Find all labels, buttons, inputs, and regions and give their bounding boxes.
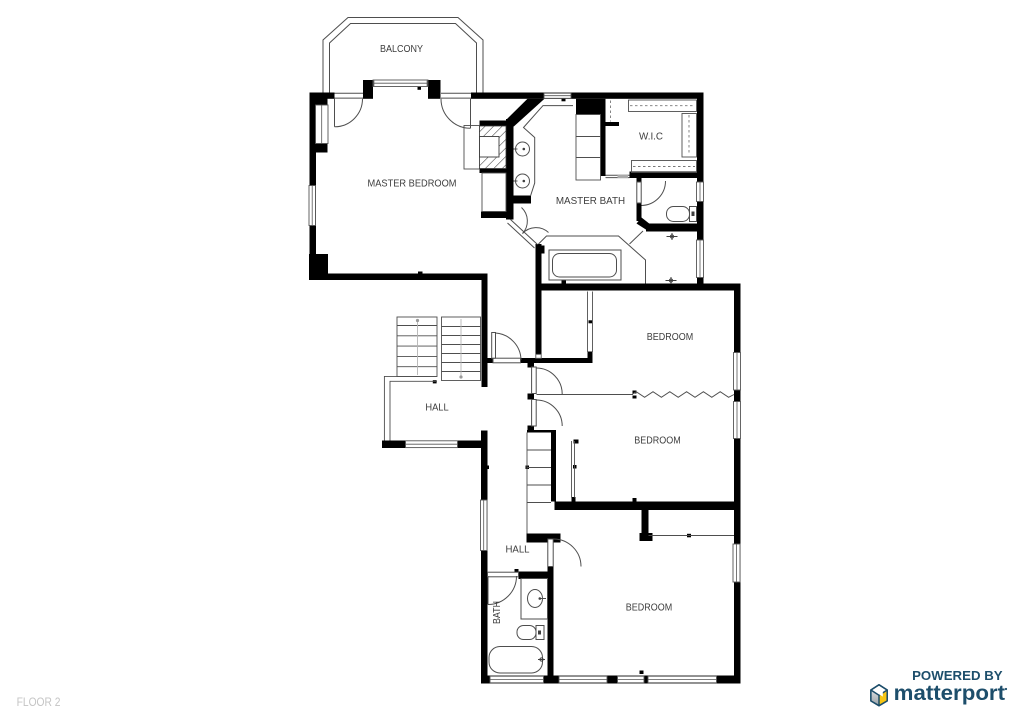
svg-text:BATH: BATH [492, 601, 503, 624]
svg-text:MASTER BEDROOM: MASTER BEDROOM [368, 179, 457, 190]
svg-text:BEDROOM: BEDROOM [647, 332, 693, 343]
svg-text:matterport: matterport [894, 682, 1005, 705]
svg-text:HALL: HALL [505, 544, 530, 555]
svg-text:BEDROOM: BEDROOM [626, 602, 672, 613]
svg-text:FLOOR 2: FLOOR 2 [17, 695, 61, 709]
svg-text:HALL: HALL [425, 402, 449, 413]
svg-text:BEDROOM: BEDROOM [634, 436, 680, 447]
svg-text:MASTER BATH: MASTER BATH [556, 196, 625, 207]
svg-text:W.I.C: W.I.C [639, 132, 663, 143]
svg-text:BALCONY: BALCONY [380, 44, 423, 55]
